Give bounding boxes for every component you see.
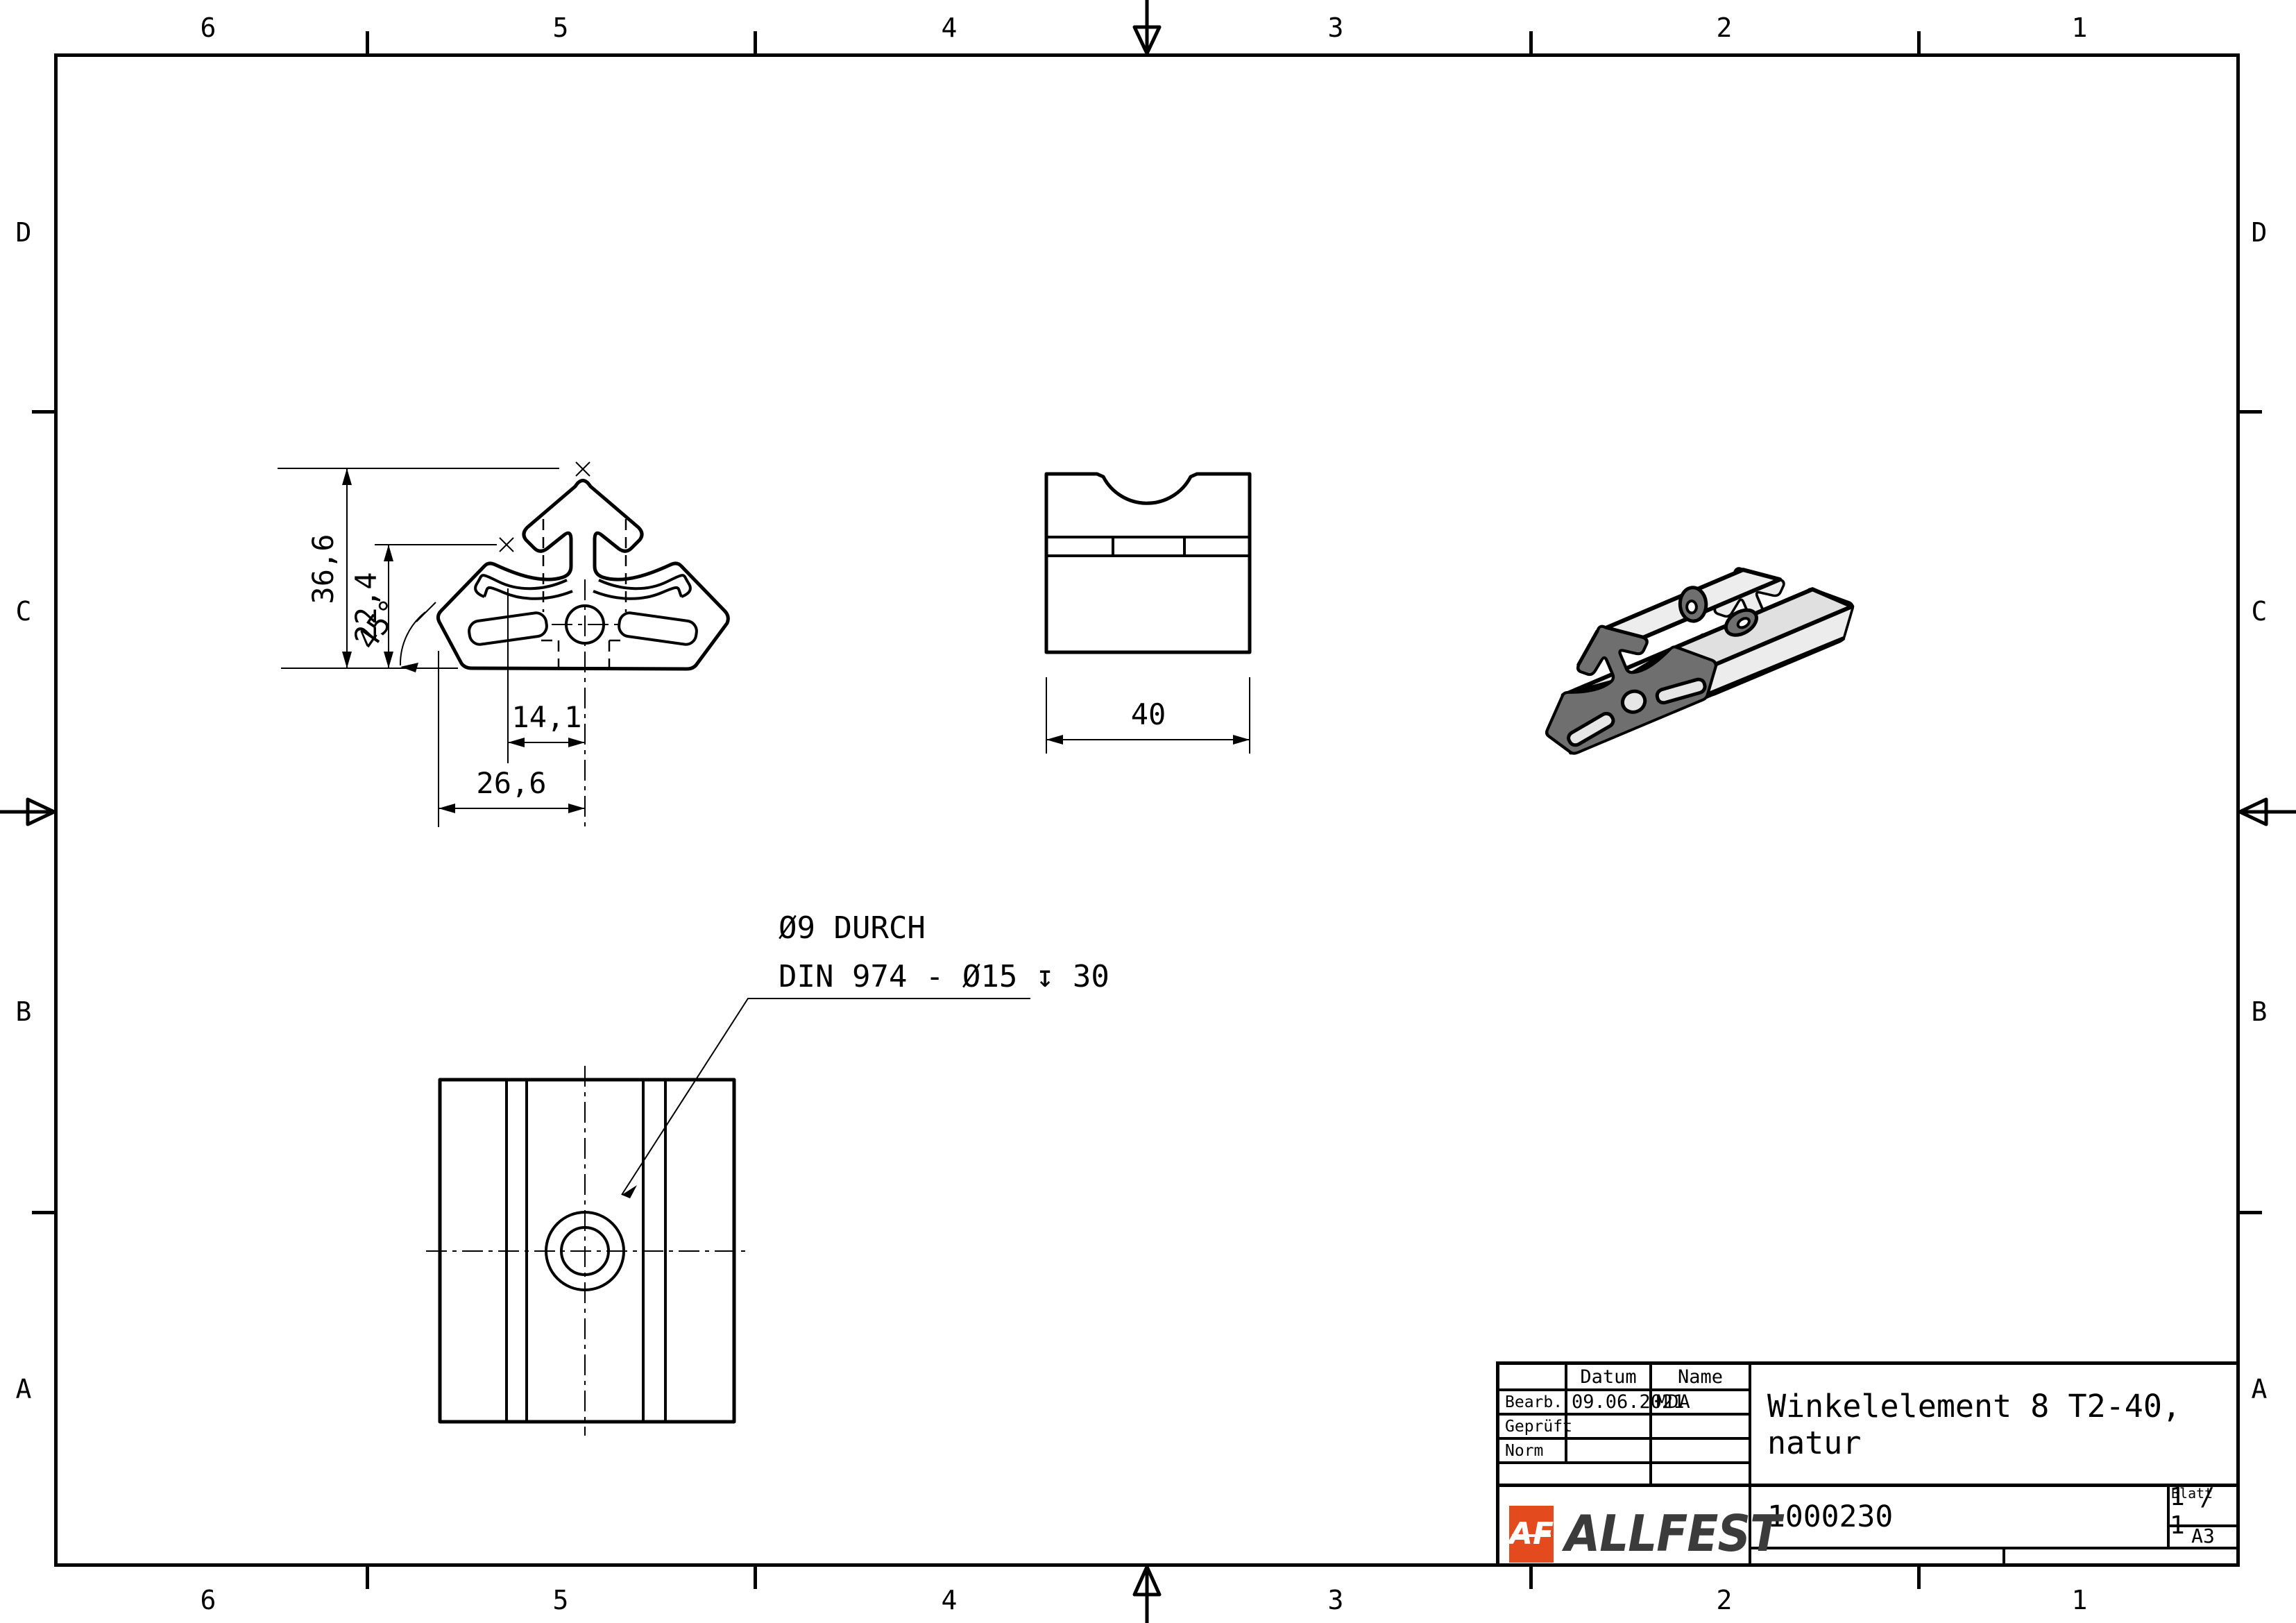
zone-tick: [366, 31, 369, 53]
centering-mark-right-icon: [2240, 791, 2296, 833]
zone-col-label: 1: [2052, 12, 2107, 43]
zone-col-label: 6: [180, 12, 236, 43]
corner-x-mark: [500, 538, 513, 552]
isometric-view: [1561, 444, 1957, 798]
corner-x-mark: [576, 462, 590, 476]
zone-col-label: 5: [533, 1585, 588, 1615]
logo-wordmark: ALLFEST: [1565, 1504, 1780, 1563]
zone-row-label: C: [2244, 596, 2274, 627]
bottom-view: Ø9 DURCH DIN 974 - Ø15 ↧ 30: [416, 874, 1055, 1450]
zone-col-label: 2: [1697, 12, 1752, 43]
front-view: 40: [1034, 458, 1270, 763]
zone-row-label: A: [2244, 1374, 2274, 1404]
title-block: Datum Name Bearb. 09.06.2021 MDA Geprüft…: [1496, 1361, 2240, 1567]
zone-col-label: 2: [1697, 1585, 1752, 1615]
zone-tick: [754, 1567, 757, 1589]
zone-tick: [2240, 410, 2262, 414]
profile-slot-right: [618, 611, 698, 645]
zone-tick: [1529, 1567, 1533, 1589]
zone-tick: [1917, 31, 1921, 53]
dim-36-6: 36,6: [306, 534, 340, 604]
hole-callout-line1: Ø9 DURCH: [779, 910, 926, 946]
zone-col-label: 3: [1308, 1585, 1363, 1615]
sheet-number: 1 / 1: [2170, 1498, 2236, 1524]
zone-col-label: 6: [180, 1585, 236, 1615]
centering-mark-bottom-icon: [1126, 1567, 1168, 1623]
zone-col-label: 1: [2052, 1585, 2107, 1615]
zone-tick: [1917, 1567, 1921, 1589]
zone-tick: [1529, 31, 1533, 53]
dim-14-1: 14,1: [511, 700, 581, 734]
tb-row-norm-label: Norm: [1505, 1440, 1565, 1461]
dim-26-6: 26,6: [476, 766, 546, 800]
zone-tick: [32, 1211, 54, 1214]
leader-line: [622, 999, 1030, 1195]
zone-tick: [366, 1567, 369, 1589]
zone-row-label: D: [8, 217, 39, 248]
company-logo: AF ALLFEST: [1509, 1501, 1745, 1567]
centering-mark-left-icon: [0, 791, 56, 833]
logo-monogram: AF: [1509, 1506, 1554, 1563]
tb-bearb-name: MDA: [1656, 1391, 1746, 1413]
zone-col-label: 4: [921, 12, 977, 43]
drawing-title: Winkelelement 8 T2-40, natur: [1767, 1365, 2225, 1484]
hole-callout-line2: DIN 974 - Ø15 ↧ 30: [779, 959, 1109, 994]
zone-row-label: B: [8, 996, 39, 1027]
tb-row-geprueft-label: Geprüft: [1505, 1416, 1565, 1437]
zone-tick: [2240, 1211, 2262, 1214]
tb-header-name: Name: [1652, 1365, 1749, 1388]
tb-header-datum: Datum: [1567, 1365, 1649, 1388]
zone-col-label: 3: [1308, 12, 1363, 43]
zone-tick: [32, 410, 54, 414]
zone-col-label: 5: [533, 12, 588, 43]
zone-row-label: A: [8, 1374, 39, 1404]
zone-row-label: B: [2244, 996, 2274, 1027]
zone-row-label: D: [2244, 217, 2274, 248]
dim-40: 40: [1131, 697, 1166, 731]
centering-mark-top-icon: [1126, 0, 1168, 54]
tb-row-bearb-label: Bearb.: [1505, 1391, 1565, 1413]
tb-bearb-datum: 09.06.2021: [1572, 1391, 1649, 1413]
section-view: 36,6 22,4 45° 14,1 26,6: [264, 437, 791, 916]
zone-tick: [754, 31, 757, 53]
part-number: 1000230: [1767, 1487, 2156, 1547]
zone-row-label: C: [8, 596, 39, 627]
paper-format: A3: [2170, 1524, 2236, 1547]
zone-col-label: 4: [921, 1585, 977, 1615]
